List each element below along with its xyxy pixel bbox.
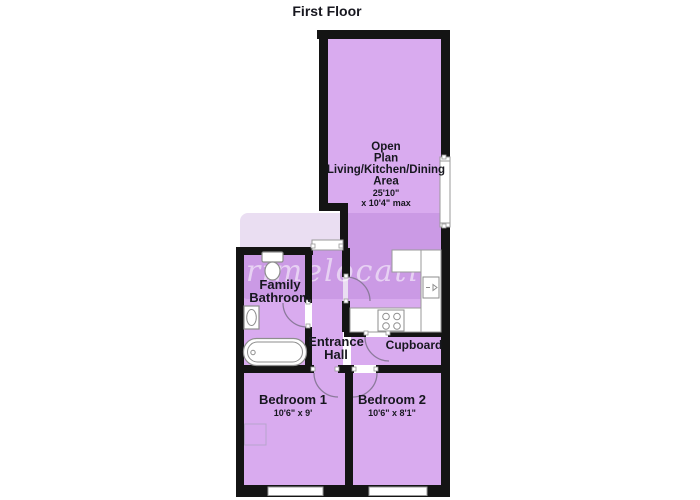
hinge-dot [339, 244, 343, 248]
hinge-dot [311, 244, 315, 248]
hinge-dot [364, 331, 368, 335]
entrance-door-opening [312, 240, 343, 250]
hinge-dot [374, 367, 378, 371]
open-plan-line3: Living/Kitchen/Dining [327, 164, 445, 176]
page-title: First Floor [292, 3, 362, 19]
open-plan-dim1: 25'10" [373, 188, 399, 198]
bedroom2-name: Bedroom 2 [358, 392, 426, 407]
hinge-dot [344, 274, 348, 278]
bedroom1-floor [244, 373, 345, 485]
hinge-dot [344, 299, 348, 303]
cupboard-label: Cupboard [386, 338, 443, 352]
wall-between-bedrooms [345, 365, 353, 497]
open-plan-line1: Open [371, 141, 400, 153]
open-plan-line4: Area [373, 176, 399, 188]
hinge-dot [442, 224, 446, 228]
floor-plan-drawing: primelocation [0, 0, 700, 500]
hinge-dot [442, 155, 446, 159]
hinge-dot [306, 324, 310, 328]
bedroom2-floor [353, 373, 441, 485]
wall-right-lower [441, 226, 450, 497]
open-plan-line2: Plan [374, 153, 398, 165]
hinge-dot [352, 367, 356, 371]
bathroom-line2: Bathroom [249, 290, 310, 305]
hinge-dot [386, 331, 390, 335]
bedroom1-dims: 10'6" x 9' [274, 408, 313, 418]
worktop-right-icon [421, 250, 441, 332]
floorplan-page: primelocation [0, 0, 700, 500]
wall-top [317, 30, 449, 39]
wall-right-upper [441, 30, 450, 158]
toilet-cistern-icon [262, 252, 283, 262]
bedroom2-label: Bedroom 2 10'6" x 8'1" [358, 392, 426, 418]
worktop-top-icon [392, 250, 421, 272]
window-bedroom1-icon [268, 487, 323, 496]
open-plan-dim2: x 10'4" max [361, 198, 410, 208]
hinge-dot [335, 367, 339, 371]
hinge-dot [311, 367, 315, 371]
window-bedroom2-icon [369, 487, 427, 496]
wall-hall-kitchen-upper [342, 248, 350, 277]
bedroom2-dims: 10'6" x 8'1" [368, 408, 416, 418]
wall-cupboard-bedroom2 [376, 365, 443, 373]
wall-hall-kitchen-lower [342, 301, 350, 332]
bedroom1-name: Bedroom 1 [259, 392, 327, 407]
wall-hall-bedroom1 [236, 365, 314, 373]
hall-line2: Hall [324, 347, 348, 362]
wall-openplan-left [319, 30, 328, 211]
